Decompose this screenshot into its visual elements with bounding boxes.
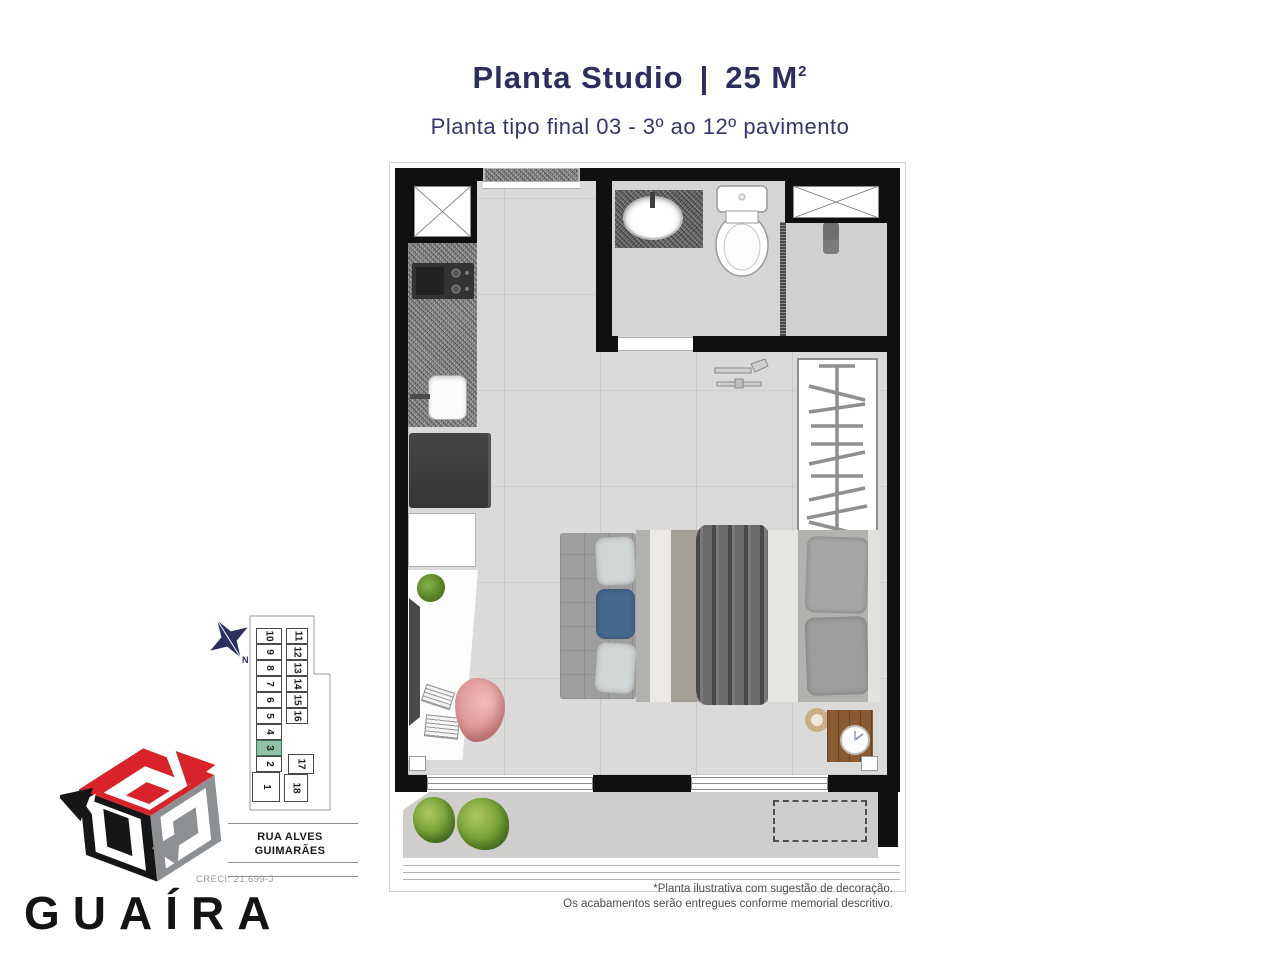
refrigerator: [409, 433, 491, 508]
keyplan-unit-13: 13: [286, 660, 308, 676]
wall-top-left: [395, 168, 483, 181]
laundry-tap-icon: [713, 356, 771, 392]
keyplan-unit-3-highlighted: 3: [256, 740, 282, 756]
balcony-plant-2: [457, 798, 509, 850]
street-edge-line-2: [228, 862, 358, 863]
duct-shaft-right-icon: [793, 186, 879, 218]
bathroom-door-threshold: [618, 337, 693, 351]
title-left: Planta Studio: [472, 60, 683, 95]
balcony-railing-line-3: [403, 879, 900, 880]
head-pillow-top: [805, 536, 870, 614]
guaira-logo-cube-icon: [60, 742, 240, 884]
keyplan-unit-17: 17: [288, 754, 314, 774]
pillow-white-bottom: [594, 642, 636, 695]
kitchen-cabinet: [408, 513, 476, 567]
entry-threshold: [483, 181, 580, 189]
runner-band: [671, 530, 698, 702]
street-line-2: GUIMARÃES: [224, 844, 356, 858]
headboard: [868, 530, 880, 702]
balcony-railing-line-1: [403, 865, 900, 866]
title-area-sup: 2: [798, 63, 807, 80]
decor-ring-icon: [805, 708, 829, 732]
window-wall-segment-1: [395, 775, 427, 792]
column-marker-right: [861, 756, 878, 771]
keyplan-unit-14: 14: [286, 676, 308, 692]
sliding-window-2: [691, 777, 828, 790]
keyplan-unit-1: 1: [252, 772, 280, 802]
bed: [560, 525, 880, 705]
footnote-line-1: *Planta ilustrativa com sugestão de deco…: [500, 882, 893, 897]
sliding-window-1: [427, 777, 593, 790]
title-separator: |: [700, 60, 710, 95]
street-label: RUA ALVES GUIMARÃES: [224, 830, 356, 858]
keyplan-unit-11: 11: [286, 628, 308, 644]
page-subtitle: Planta tipo final 03 - 3º ao 12º pavimen…: [330, 114, 950, 140]
bathroom-faucet-icon: [650, 192, 655, 208]
street-line-1: RUA ALVES: [224, 830, 356, 844]
keyplan-unit-6: 6: [256, 692, 282, 708]
kitchen-faucet-icon: [410, 394, 430, 399]
keyplan-unit-16: 16: [286, 708, 308, 724]
toilet-icon: [713, 185, 771, 279]
tv-on-desk: [409, 598, 420, 726]
head-pillow-bottom: [805, 616, 870, 696]
floorplan: [395, 168, 900, 885]
pillow-blue: [596, 589, 635, 639]
bathroom-wall-left: [596, 181, 612, 338]
flyer-canvas: Planta Studio|25 M2 Planta tipo final 03…: [0, 0, 1280, 960]
wall-left: [395, 168, 408, 775]
north-compass-icon: N: [206, 616, 252, 666]
keyplan-unit-9: 9: [256, 644, 282, 660]
balcony-plant-1: [413, 797, 455, 843]
page-title: Planta Studio|25 M2: [330, 60, 950, 96]
keyplan-unit-10: 10: [256, 628, 282, 644]
wall-right: [887, 168, 900, 792]
sheet-band: [650, 530, 671, 702]
keyplan-unit-5: 5: [256, 708, 282, 724]
column-marker-left: [409, 756, 426, 771]
street-edge-line-1: [228, 823, 358, 824]
pillow-white-top: [595, 536, 636, 586]
desk-keyboard: [424, 714, 460, 739]
kitchen-sink-icon: [428, 375, 467, 420]
shower-partition: [780, 222, 786, 336]
keyplan-unit-4: 4: [256, 724, 282, 740]
keyplan-unit-15: 15: [286, 692, 308, 708]
window-wall-segment-3: [828, 775, 900, 792]
creci-number: CRECI: 21.699-J: [196, 874, 274, 885]
balcony-railing-line-2: [403, 872, 900, 873]
clock-icon: [839, 724, 871, 756]
bed-blanket: [696, 525, 770, 705]
keyplan: 10 9 8 7 6 5 4 3 2 1 11 12 13 14 15 16 1…: [248, 614, 348, 814]
brand-name: GUAÍRA: [24, 890, 283, 936]
duct-shaft-left-icon: [414, 186, 471, 237]
footnote-line-2: Os acabamentos serão entregues conforme …: [500, 897, 893, 912]
keyplan-unit-2: 2: [256, 756, 282, 772]
sheet-band-2: [768, 530, 798, 702]
keyplan-unit-7: 7: [256, 676, 282, 692]
wall-top-right: [580, 168, 900, 181]
title-area: 25 M: [725, 60, 798, 95]
entry-mat: [485, 169, 578, 181]
ac-condenser-dashed-outline: [773, 800, 867, 842]
keyplan-unit-12: 12: [286, 644, 308, 660]
bathroom-wall-bottom-stub: [596, 336, 618, 352]
keyplan-unit-18: 18: [284, 774, 308, 802]
shower-drain-icon: [823, 222, 839, 254]
footnote: *Planta ilustrativa com sugestão de deco…: [500, 882, 893, 912]
window-wall-segment-2: [593, 775, 691, 792]
bathroom-wall-bottom: [693, 336, 887, 352]
keyplan-unit-8: 8: [256, 660, 282, 676]
cooktop-icon: [412, 263, 474, 299]
wall-right-balcony: [878, 792, 898, 847]
